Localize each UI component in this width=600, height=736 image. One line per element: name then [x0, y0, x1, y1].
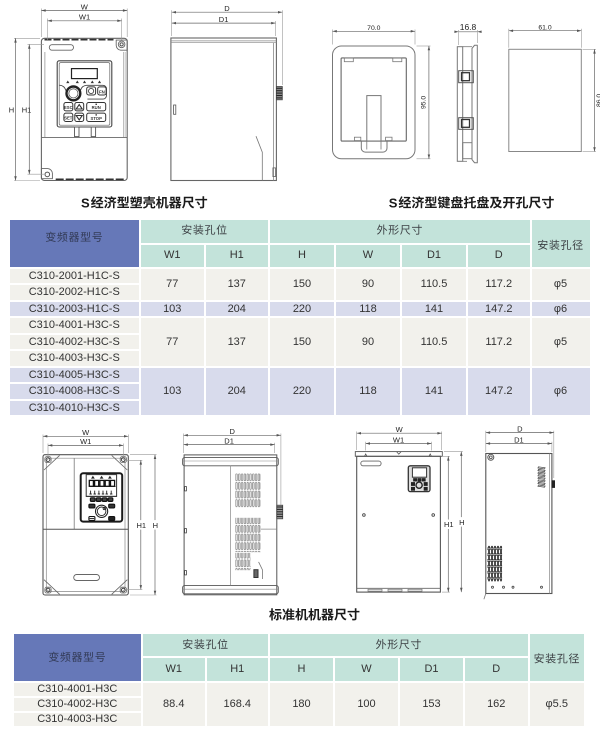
svg-text:D1: D1: [514, 435, 524, 444]
svg-text:H1: H1: [22, 105, 32, 114]
svg-text:ESC: ESC: [64, 105, 73, 110]
svg-text:W1: W1: [393, 435, 404, 444]
svg-text:D: D: [517, 424, 523, 433]
svg-text:S: S: [81, 195, 90, 210]
svg-text:D: D: [224, 4, 230, 13]
svg-text:D1: D1: [224, 436, 234, 445]
svg-text:W: W: [396, 425, 404, 434]
svg-text:86.0: 86.0: [596, 94, 600, 107]
svg-text:SET: SET: [64, 115, 73, 120]
svg-text:H: H: [9, 105, 14, 114]
svg-text:H: H: [459, 518, 464, 527]
svg-text:W: W: [82, 428, 90, 437]
svg-text:D: D: [229, 427, 235, 436]
svg-text:H1: H1: [137, 521, 147, 530]
svg-text:D1: D1: [219, 15, 229, 24]
svg-text:W: W: [81, 2, 89, 11]
svg-text:H: H: [153, 521, 158, 530]
svg-text:70.0: 70.0: [367, 25, 380, 32]
svg-text:95.0: 95.0: [421, 96, 428, 109]
svg-text:W1: W1: [79, 13, 90, 22]
svg-text:STOP: STOP: [91, 116, 103, 121]
svg-text:RUN: RUN: [92, 105, 101, 110]
svg-text:W1: W1: [80, 437, 91, 446]
svg-text:S: S: [389, 195, 398, 210]
svg-text:H1: H1: [444, 520, 454, 529]
svg-text:61.0: 61.0: [538, 25, 551, 32]
svg-text:FN: FN: [99, 89, 105, 94]
svg-text:16.8: 16.8: [460, 22, 477, 32]
